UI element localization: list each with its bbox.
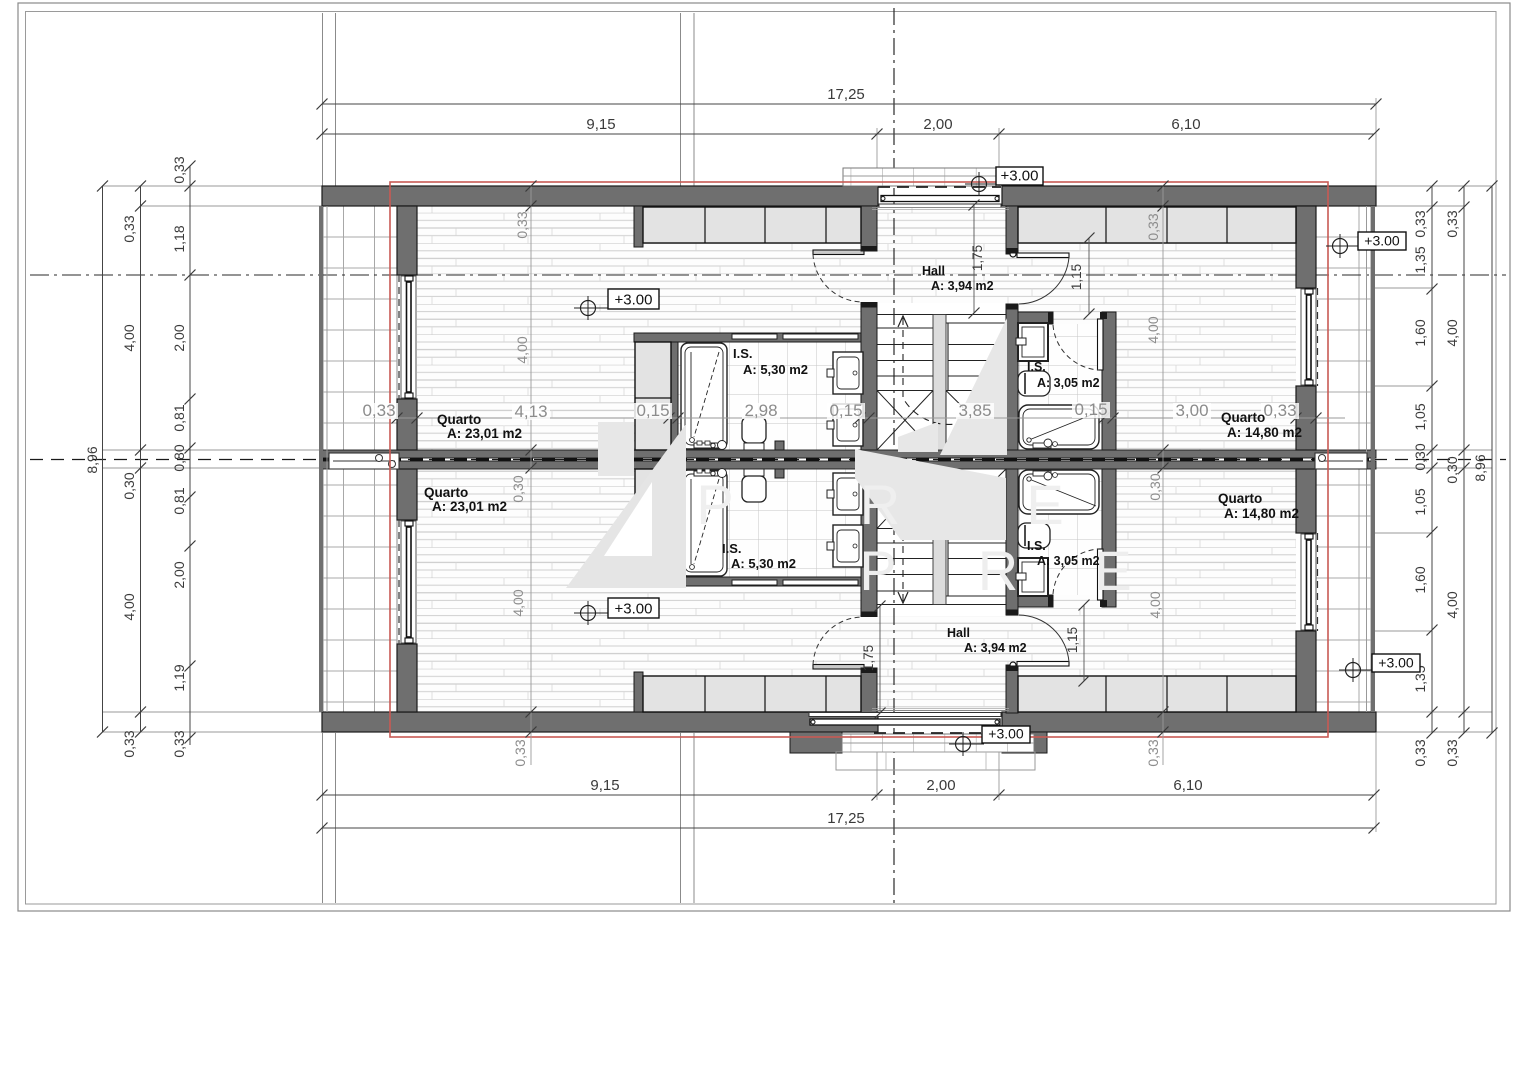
svg-text:0,30: 0,30 (1412, 443, 1428, 470)
svg-text:0,33: 0,33 (121, 215, 137, 242)
svg-text:1,05: 1,05 (1412, 403, 1428, 430)
svg-text:Quarto: Quarto (437, 412, 481, 427)
svg-text:I.S.: I.S. (722, 541, 742, 556)
svg-text:P: P (859, 539, 896, 602)
svg-text:0,33: 0,33 (1145, 213, 1161, 240)
svg-text:1,75: 1,75 (861, 645, 876, 671)
svg-text:3,00: 3,00 (1175, 401, 1208, 420)
svg-text:2,00: 2,00 (926, 777, 955, 794)
svg-text:1,19: 1,19 (171, 664, 187, 691)
svg-text:2,00: 2,00 (171, 561, 187, 588)
svg-text:Quarto: Quarto (1218, 491, 1262, 506)
svg-text:I.S.: I.S. (1027, 539, 1046, 553)
svg-text:Hall: Hall (922, 264, 945, 278)
svg-text:4,00: 4,00 (121, 324, 137, 351)
svg-text:2,00: 2,00 (923, 116, 952, 133)
svg-text:1,60: 1,60 (1412, 319, 1428, 346)
svg-text:0,33: 0,33 (1444, 739, 1460, 766)
svg-text:0,81: 0,81 (171, 487, 187, 514)
svg-text:17,25: 17,25 (827, 810, 865, 827)
svg-text:0,33: 0,33 (362, 401, 395, 420)
svg-text:+3.00: +3.00 (988, 726, 1024, 742)
svg-text:4,00: 4,00 (1145, 316, 1161, 343)
svg-text:R: R (978, 539, 1018, 602)
svg-text:4,00: 4,00 (121, 593, 137, 620)
svg-text:Quarto: Quarto (1221, 410, 1265, 425)
svg-text:A: 3,94 m2: A: 3,94 m2 (931, 279, 994, 293)
svg-text:4,00: 4,00 (1147, 591, 1163, 618)
svg-text:0,30: 0,30 (510, 475, 526, 502)
svg-text:0,33: 0,33 (171, 156, 187, 183)
svg-text:E: E (1026, 473, 1063, 536)
svg-text:A: 14,80 m2: A: 14,80 m2 (1224, 506, 1299, 521)
svg-text:0,81: 0,81 (171, 404, 187, 431)
svg-text:0,80: 0,80 (171, 444, 187, 471)
svg-text:+3.00: +3.00 (615, 601, 653, 618)
svg-text:8,96: 8,96 (1472, 454, 1488, 481)
svg-text:0,33: 0,33 (1263, 401, 1296, 420)
svg-text:I.S.: I.S. (1027, 360, 1046, 374)
svg-text:0,33: 0,33 (171, 730, 187, 757)
svg-text:1,18: 1,18 (171, 225, 187, 252)
svg-text:6,10: 6,10 (1171, 116, 1200, 133)
svg-text:+3.00: +3.00 (615, 292, 653, 309)
svg-text:A: 23,01 m2: A: 23,01 m2 (432, 499, 507, 514)
svg-text:1,60: 1,60 (1412, 566, 1428, 593)
svg-text:2,00: 2,00 (171, 324, 187, 351)
svg-text:P: P (696, 473, 733, 536)
svg-text:0,33: 0,33 (514, 211, 530, 238)
svg-text:A: 3,05 m2: A: 3,05 m2 (1037, 554, 1100, 568)
svg-text:0,30: 0,30 (1444, 456, 1460, 483)
svg-text:1,75: 1,75 (970, 245, 985, 271)
svg-text:6,10: 6,10 (1173, 777, 1202, 794)
svg-text:9,15: 9,15 (590, 777, 619, 794)
svg-text:0,15: 0,15 (1074, 400, 1107, 419)
svg-text:0,15: 0,15 (636, 401, 669, 420)
svg-text:A: 23,01 m2: A: 23,01 m2 (447, 426, 522, 441)
svg-text:8,96: 8,96 (84, 446, 100, 473)
svg-text:4,00: 4,00 (510, 589, 526, 616)
svg-text:17,25: 17,25 (827, 86, 865, 103)
svg-text:1,05: 1,05 (1412, 488, 1428, 515)
svg-text:Quarto: Quarto (424, 485, 468, 500)
svg-text:+3.00: +3.00 (1378, 655, 1414, 671)
svg-text:+3.00: +3.00 (1364, 233, 1400, 249)
svg-text:0,33: 0,33 (1412, 739, 1428, 766)
svg-text:Hall: Hall (947, 626, 970, 640)
svg-text:0,15: 0,15 (829, 401, 862, 420)
svg-text:A: 3,05 m2: A: 3,05 m2 (1037, 376, 1100, 390)
svg-text:3,85: 3,85 (958, 401, 991, 420)
svg-text:0,33: 0,33 (512, 739, 528, 766)
svg-text:I.S.: I.S. (733, 346, 753, 361)
svg-text:4,00: 4,00 (1444, 591, 1460, 618)
svg-text:9,15: 9,15 (586, 116, 615, 133)
svg-text:+3.00: +3.00 (1001, 168, 1039, 185)
svg-text:E: E (1094, 539, 1131, 602)
svg-text:A: 5,30 m2: A: 5,30 m2 (743, 362, 808, 377)
svg-text:A: 3,94 m2: A: 3,94 m2 (964, 641, 1027, 655)
svg-text:4,00: 4,00 (1444, 319, 1460, 346)
svg-text:2,98: 2,98 (744, 401, 777, 420)
svg-text:0,33: 0,33 (1145, 739, 1161, 766)
svg-text:0,30: 0,30 (121, 472, 137, 499)
svg-text:A: 14,80 m2: A: 14,80 m2 (1227, 425, 1302, 440)
svg-text:A: 5,30 m2: A: 5,30 m2 (731, 556, 796, 571)
svg-text:4,13: 4,13 (514, 402, 547, 421)
svg-text:0,33: 0,33 (1412, 210, 1428, 237)
svg-text:0,33: 0,33 (1444, 210, 1460, 237)
svg-text:1,15: 1,15 (1065, 627, 1080, 653)
svg-text:4,00: 4,00 (514, 336, 530, 363)
svg-text:1,15: 1,15 (1069, 264, 1084, 290)
svg-text:R: R (860, 473, 900, 536)
svg-text:0,30: 0,30 (1147, 473, 1163, 500)
svg-text:0,33: 0,33 (121, 730, 137, 757)
svg-text:1,35: 1,35 (1412, 246, 1428, 273)
